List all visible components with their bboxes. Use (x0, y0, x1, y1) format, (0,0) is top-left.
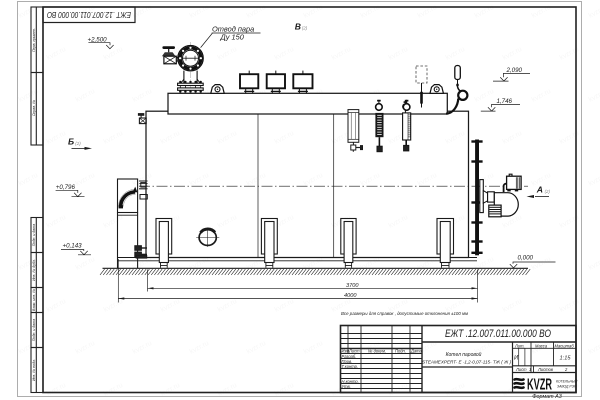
svg-text:Т.контр.: Т.контр. (342, 364, 359, 369)
svg-text:Листов: Листов (537, 367, 554, 372)
svg-text:КОТЕЛЬНЫЙ: КОТЕЛЬНЫЙ (556, 380, 578, 384)
svg-text:Подп.: Подп. (395, 349, 406, 354)
svg-text:И: И (514, 356, 519, 362)
svg-text:Лит.: Лит. (514, 343, 525, 348)
svg-text:0,000: 0,000 (518, 255, 534, 262)
svg-text:Б: Б (68, 137, 74, 147)
svg-text:+0,143: +0,143 (63, 243, 83, 250)
svg-text:STEAMEXPERT- Е -1,2-0,07-115-: STEAMEXPERT- Е -1,2-0,07-115- ТЖ ( Ж ) (422, 360, 512, 365)
svg-text:Взам. инв. №: Взам. инв. № (32, 289, 36, 311)
svg-text:Справ. №: Справ. № (32, 100, 36, 116)
svg-text:Формат А3: Формат А3 (532, 394, 562, 400)
svg-text:(2): (2) (302, 26, 308, 31)
svg-text:(2): (2) (545, 189, 551, 194)
svg-text:+0,796: +0,796 (56, 184, 76, 191)
svg-text:Инв. № подл.: Инв. № подл. (32, 359, 36, 381)
svg-text:Котел паровой: Котел паровой (446, 351, 482, 358)
svg-text:Подп. и дата: Подп. и дата (32, 224, 36, 247)
svg-text:Все размеры для справок , допу: Все размеры для справок , допустимые отк… (341, 311, 469, 316)
svg-text:Инв. № дубл.: Инв. № дубл. (32, 259, 36, 281)
svg-text:Ду 150: Ду 150 (220, 32, 245, 41)
svg-text:Подп. и дата: Подп. и дата (32, 319, 36, 342)
svg-text:4000: 4000 (344, 293, 357, 299)
svg-text:Дата: Дата (410, 349, 423, 354)
svg-text:В: В (295, 21, 301, 31)
svg-text:Утв.: Утв. (342, 384, 351, 389)
svg-text:(2): (2) (75, 141, 81, 146)
svg-text:1: 1 (529, 367, 531, 372)
svg-text:ЕЖТ .12.007.011.00.000 ВО: ЕЖТ .12.007.011.00.000 ВО (47, 10, 131, 19)
svg-text:№ докум.: № докум. (368, 349, 386, 354)
svg-text:Лист: Лист (515, 367, 527, 372)
svg-text:ЕЖТ .12.007.011.00.000 ВО: ЕЖТ .12.007.011.00.000 ВО (445, 328, 551, 340)
svg-text:1:15: 1:15 (560, 356, 572, 362)
svg-text:А: А (536, 185, 543, 195)
svg-text:+2,500: +2,500 (88, 36, 108, 43)
svg-text:Перв. примен.: Перв. примен. (32, 28, 36, 52)
svg-text:Масштаб: Масштаб (555, 343, 575, 348)
svg-text:KVZR: KVZR (527, 377, 552, 394)
svg-text:Масса: Масса (535, 343, 548, 348)
svg-text:3700: 3700 (346, 283, 359, 289)
svg-text:ЗАВОД РЭР: ЗАВОД РЭР (557, 385, 577, 389)
